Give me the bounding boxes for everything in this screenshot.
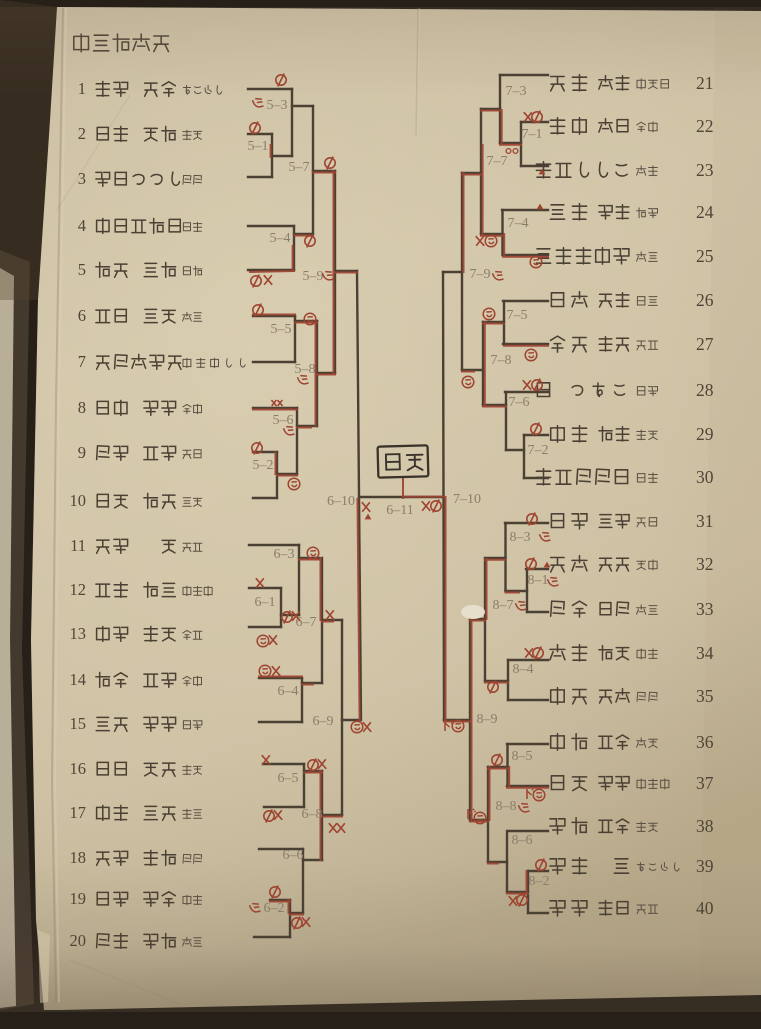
svg-text:6–3: 6–3 [274, 547, 295, 562]
svg-text:6–10: 6–10 [327, 494, 355, 509]
svg-text:3: 3 [78, 169, 86, 188]
svg-text:5–7: 5–7 [289, 160, 310, 175]
svg-text:33: 33 [696, 599, 714, 619]
svg-text:12: 12 [70, 580, 87, 599]
svg-text:10: 10 [70, 491, 87, 510]
svg-text:6–5: 6–5 [278, 771, 299, 786]
svg-text:11: 11 [70, 536, 86, 555]
svg-text:7–6: 7–6 [509, 395, 530, 410]
svg-text:37: 37 [696, 773, 714, 793]
svg-text:7–4: 7–4 [508, 216, 529, 231]
svg-text:7–1: 7–1 [522, 127, 543, 142]
svg-text:2: 2 [78, 124, 86, 143]
svg-text:7–2: 7–2 [528, 443, 549, 458]
svg-text:7–7: 7–7 [487, 154, 508, 169]
svg-text:8–1: 8–1 [528, 573, 549, 588]
svg-text:6–1: 6–1 [255, 595, 276, 610]
svg-text:31: 31 [696, 511, 714, 531]
svg-text:5–3: 5–3 [267, 98, 288, 113]
svg-text:39: 39 [696, 856, 714, 876]
svg-text:8–9: 8–9 [477, 712, 498, 727]
svg-text:5–8: 5–8 [295, 362, 316, 377]
svg-text:6–9: 6–9 [313, 714, 334, 729]
svg-text:30: 30 [696, 467, 714, 487]
svg-text:13: 13 [70, 624, 87, 643]
svg-text:8: 8 [78, 398, 86, 417]
svg-text:4: 4 [78, 216, 86, 235]
svg-text:26: 26 [696, 290, 714, 310]
svg-text:5–2: 5–2 [253, 458, 274, 473]
svg-text:40: 40 [696, 898, 714, 918]
svg-text:7–9: 7–9 [470, 267, 491, 282]
svg-text:14: 14 [70, 670, 87, 689]
svg-text:6–8: 6–8 [302, 807, 323, 822]
svg-text:8–8: 8–8 [496, 799, 517, 814]
svg-text:7–8: 7–8 [491, 353, 512, 368]
svg-text:7–10: 7–10 [453, 492, 481, 507]
svg-text:5: 5 [78, 260, 86, 279]
svg-text:32: 32 [696, 554, 714, 574]
svg-text:9: 9 [78, 443, 86, 462]
svg-text:7–3: 7–3 [506, 84, 527, 99]
svg-text:6–6: 6–6 [283, 848, 304, 863]
svg-text:28: 28 [696, 380, 714, 400]
svg-text:8–3: 8–3 [510, 530, 531, 545]
svg-text:34: 34 [696, 643, 714, 663]
svg-text:15: 15 [70, 714, 87, 733]
svg-text:17: 17 [70, 803, 87, 822]
svg-text:8–6: 8–6 [512, 833, 533, 848]
svg-text:36: 36 [696, 732, 714, 752]
svg-text:7: 7 [78, 352, 86, 371]
svg-text:5–1: 5–1 [248, 139, 269, 154]
svg-text:6–2: 6–2 [264, 901, 285, 916]
svg-text:20: 20 [70, 931, 87, 950]
svg-text:22: 22 [696, 116, 714, 136]
svg-text:19: 19 [70, 889, 87, 908]
svg-text:5–9: 5–9 [303, 269, 324, 284]
svg-text:16: 16 [70, 759, 87, 778]
svg-text:5–5: 5–5 [271, 322, 292, 337]
svg-text:1: 1 [78, 79, 86, 98]
svg-text:25: 25 [696, 246, 714, 266]
svg-text:5–6: 5–6 [273, 413, 294, 428]
svg-text:6–4: 6–4 [278, 684, 299, 699]
svg-text:5–4: 5–4 [270, 231, 291, 246]
svg-text:8–5: 8–5 [512, 749, 533, 764]
svg-text:6–7: 6–7 [296, 615, 317, 630]
svg-text:23: 23 [696, 160, 714, 180]
svg-text:8–7: 8–7 [493, 598, 514, 613]
svg-text:38: 38 [696, 816, 714, 836]
svg-text:29: 29 [696, 424, 714, 444]
svg-text:35: 35 [696, 686, 714, 706]
svg-text:24: 24 [696, 202, 714, 222]
svg-text:8–2: 8–2 [529, 874, 550, 889]
svg-text:27: 27 [696, 334, 714, 354]
svg-text:6: 6 [78, 306, 86, 325]
svg-text:7–5: 7–5 [507, 308, 528, 323]
svg-text:8–4: 8–4 [513, 662, 534, 677]
svg-text:6–11: 6–11 [386, 503, 413, 518]
svg-text:18: 18 [70, 848, 87, 867]
svg-text:21: 21 [696, 73, 714, 93]
